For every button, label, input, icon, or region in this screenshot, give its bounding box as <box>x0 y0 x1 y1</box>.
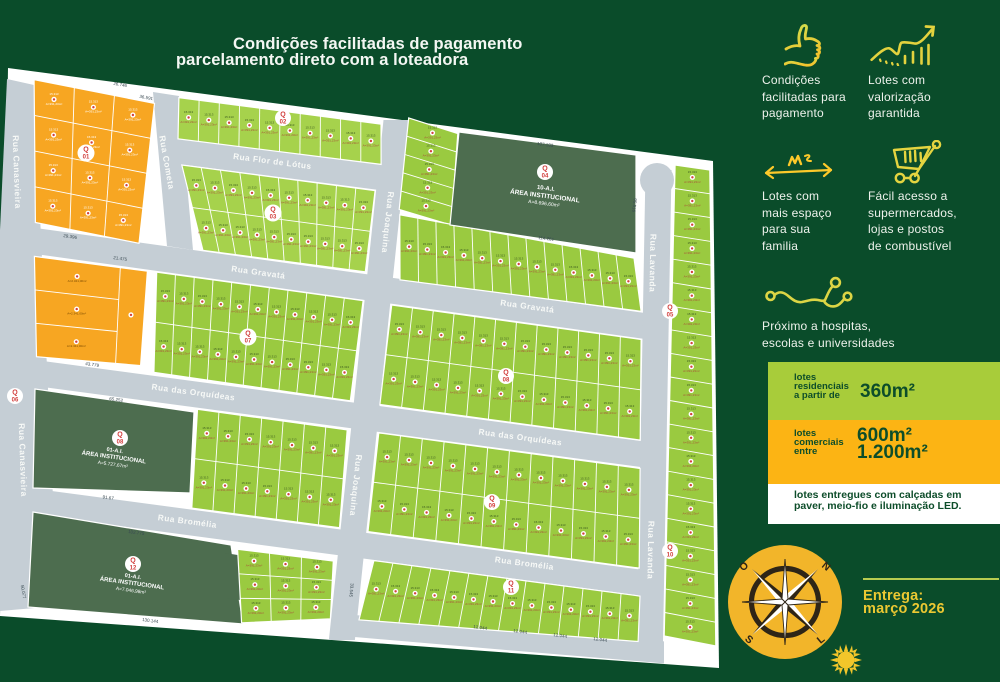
svg-text:15.313: 15.313 <box>161 289 171 293</box>
svg-text:A=391,23m²: A=391,23m² <box>259 494 275 498</box>
svg-text:A=391,23m²: A=391,23m² <box>155 349 171 353</box>
svg-text:A=391,23m²: A=391,23m² <box>401 463 417 467</box>
svg-text:A=391,23m²: A=391,23m² <box>268 315 284 319</box>
svg-text:A=391,23m²: A=391,23m² <box>475 343 491 347</box>
svg-text:A=391,23m²: A=391,23m² <box>683 464 699 468</box>
svg-text:15.313: 15.313 <box>263 484 273 488</box>
svg-text:15.313: 15.313 <box>285 190 295 194</box>
svg-text:15.313: 15.313 <box>586 604 596 608</box>
svg-text:15.313: 15.313 <box>518 389 528 393</box>
svg-text:A=391,23m²: A=391,23m² <box>301 500 317 504</box>
svg-text:15.313: 15.313 <box>202 426 212 430</box>
svg-text:A=391,23m²: A=391,23m² <box>118 188 134 192</box>
svg-text:A=391,23m²: A=391,23m² <box>621 492 637 496</box>
svg-text:15.313: 15.313 <box>272 305 282 309</box>
svg-text:A=391,23m²: A=391,23m² <box>599 489 615 493</box>
svg-text:15.313: 15.313 <box>428 125 438 129</box>
svg-text:15.313: 15.313 <box>422 505 432 509</box>
svg-text:A=391,23m²: A=391,23m² <box>621 414 637 418</box>
svg-text:15.313: 15.313 <box>311 600 321 604</box>
svg-text:A=391,23m²: A=391,23m² <box>300 370 316 374</box>
svg-text:Rua Lavanda: Rua Lavanda <box>647 234 658 293</box>
svg-text:A=391,23m²: A=391,23m² <box>441 518 457 522</box>
svg-text:15.313: 15.313 <box>686 549 696 553</box>
svg-text:A=391,23m²: A=391,23m² <box>620 542 636 546</box>
svg-text:A=391,23m²: A=391,23m² <box>418 209 434 213</box>
svg-text:A=391,23m²: A=391,23m² <box>213 307 229 311</box>
svg-text:A=391,23m²: A=391,23m² <box>318 372 334 376</box>
svg-text:Q: Q <box>667 305 673 312</box>
svg-text:A=391,23m²: A=391,23m² <box>580 358 596 362</box>
svg-text:A=391,23m²: A=391,23m² <box>180 120 196 124</box>
svg-text:A=391,23m²: A=391,23m² <box>465 602 481 606</box>
svg-text:A=391,23m²: A=391,23m² <box>220 439 236 443</box>
svg-text:15.313: 15.313 <box>582 398 592 402</box>
svg-text:15.313: 15.313 <box>159 339 169 343</box>
svg-text:A=391,23m²: A=391,23m² <box>173 352 189 356</box>
svg-text:A=391,23m²: A=391,23m² <box>622 364 638 368</box>
svg-text:15.313: 15.313 <box>220 478 230 482</box>
svg-text:15.313: 15.313 <box>426 456 436 460</box>
svg-text:15.313: 15.313 <box>556 523 566 527</box>
svg-text:15.313: 15.313 <box>688 241 698 245</box>
svg-text:15.313: 15.313 <box>475 383 485 387</box>
svg-text:A=391,23m²: A=391,23m² <box>305 320 321 324</box>
svg-text:15.313: 15.313 <box>444 508 454 512</box>
svg-text:15.313: 15.313 <box>489 514 499 518</box>
svg-text:A=391,23m²: A=391,23m² <box>456 258 472 262</box>
svg-text:A=391,23m²: A=391,23m² <box>368 592 384 596</box>
svg-text:15.313: 15.313 <box>687 336 697 340</box>
svg-text:15.313: 15.313 <box>542 342 552 346</box>
svg-text:A=2.341,00m²: A=2.341,00m² <box>67 344 86 348</box>
svg-text:A=391,23m²: A=391,23m² <box>485 604 501 608</box>
svg-text:A=391,23m²: A=391,23m² <box>249 237 265 241</box>
svg-text:A=391,23m²: A=391,23m² <box>600 411 616 415</box>
svg-text:15.313: 15.313 <box>284 487 294 491</box>
svg-text:15.313: 15.313 <box>265 120 275 124</box>
svg-text:15.313: 15.313 <box>605 351 615 355</box>
svg-text:15.313: 15.313 <box>426 144 436 148</box>
svg-text:15.313: 15.313 <box>309 310 319 314</box>
svg-text:15.313: 15.313 <box>604 401 614 405</box>
svg-text:15.313: 15.313 <box>534 520 544 524</box>
svg-text:A=391,23m²: A=391,23m² <box>282 367 298 371</box>
svg-text:A=391,23m²: A=391,23m² <box>324 322 340 326</box>
svg-text:15.313: 15.313 <box>569 265 579 269</box>
svg-text:15.313: 15.313 <box>458 331 468 335</box>
svg-text:A=391,23m²: A=391,23m² <box>281 200 297 204</box>
svg-text:A=391,23m²: A=391,23m² <box>602 616 618 620</box>
svg-text:Q: Q <box>12 390 18 397</box>
svg-text:15.313: 15.313 <box>425 162 435 166</box>
svg-text:A=391,23m²: A=391,23m² <box>423 154 439 158</box>
svg-text:A=391,23m²: A=391,23m² <box>529 269 545 273</box>
svg-text:15.313: 15.313 <box>448 459 458 463</box>
svg-text:15.313: 15.313 <box>688 170 698 174</box>
svg-text:Q: Q <box>542 166 548 173</box>
svg-text:A=391,23m²: A=391,23m² <box>80 216 96 220</box>
svg-text:15.313: 15.313 <box>305 490 315 494</box>
svg-text:15.313: 15.313 <box>496 254 506 258</box>
svg-text:15.313: 15.313 <box>270 230 280 234</box>
svg-text:15.313: 15.313 <box>469 592 479 596</box>
svg-text:15.313: 15.313 <box>250 577 260 581</box>
svg-text:A=391,23m²: A=391,23m² <box>601 361 617 365</box>
svg-text:15.313: 15.313 <box>281 579 291 583</box>
svg-text:A=391,23m²: A=391,23m² <box>412 335 428 339</box>
svg-text:A=391,23m²: A=391,23m² <box>683 488 699 492</box>
svg-text:A=391,23m²: A=391,23m² <box>682 582 698 586</box>
svg-text:15.313: 15.313 <box>411 375 421 379</box>
svg-text:15.313: 15.313 <box>558 473 568 477</box>
svg-text:15.313: 15.313 <box>87 135 97 139</box>
svg-text:15.313: 15.313 <box>625 404 635 408</box>
svg-text:A=391,23m²: A=391,23m² <box>188 188 204 192</box>
svg-text:15.313: 15.313 <box>242 481 252 485</box>
svg-text:A=391,23m²: A=391,23m² <box>278 610 294 614</box>
svg-text:15.313: 15.313 <box>500 336 510 340</box>
svg-text:A=391,23m²: A=391,23m² <box>547 272 563 276</box>
svg-text:07: 07 <box>245 339 252 345</box>
svg-text:A=391,23m²: A=391,23m² <box>426 598 442 602</box>
svg-text:A=391,23m²: A=391,23m² <box>334 249 350 253</box>
svg-text:A=391,23m²: A=391,23m² <box>543 610 559 614</box>
svg-text:A=391,23m²: A=391,23m² <box>682 559 698 563</box>
svg-text:15.313: 15.313 <box>290 307 300 311</box>
svg-text:A=391,23m²: A=391,23m² <box>225 193 241 197</box>
svg-text:A=391,23m²: A=391,23m² <box>262 198 278 202</box>
svg-text:A=391,23m²: A=391,23m² <box>530 530 546 534</box>
svg-text:15.313: 15.313 <box>125 143 135 147</box>
svg-text:A=391,23m²: A=391,23m² <box>121 153 137 157</box>
svg-text:Q: Q <box>270 207 276 214</box>
svg-text:A=391,23m²: A=391,23m² <box>82 180 98 184</box>
svg-text:A=391,23m²: A=391,23m² <box>85 110 101 114</box>
svg-text:15.313: 15.313 <box>561 395 571 399</box>
svg-text:15.313: 15.313 <box>340 365 350 369</box>
svg-text:A=391,23m²: A=391,23m² <box>228 359 244 363</box>
svg-text:09: 09 <box>489 504 496 510</box>
svg-text:15.313: 15.313 <box>416 325 426 329</box>
svg-text:15.313: 15.313 <box>231 349 241 353</box>
svg-text:15.313: 15.313 <box>532 259 542 263</box>
svg-text:15.313: 15.313 <box>119 213 129 217</box>
svg-text:15.313: 15.313 <box>359 200 369 204</box>
svg-text:15.313: 15.313 <box>563 345 573 349</box>
svg-text:15.313: 15.313 <box>421 199 431 203</box>
svg-text:Q: Q <box>489 496 495 503</box>
svg-text:A=391,23m²: A=391,23m² <box>683 440 699 444</box>
svg-text:A=391,23m²: A=391,23m² <box>492 264 508 268</box>
svg-text:A=391,23m²: A=391,23m² <box>247 587 263 591</box>
svg-text:A=391,23m²: A=391,23m² <box>582 614 598 618</box>
svg-text:15.313: 15.313 <box>235 299 245 303</box>
svg-text:15.313: 15.313 <box>340 198 350 202</box>
svg-text:A=391,23m²: A=391,23m² <box>210 357 226 361</box>
svg-text:A=391,23m²: A=391,23m² <box>514 399 530 403</box>
svg-text:A=391,23m²: A=391,23m² <box>508 527 524 531</box>
svg-text:A=391,23m²: A=391,23m² <box>308 590 324 594</box>
svg-text:A=391,23m²: A=391,23m² <box>277 567 293 571</box>
svg-text:15.313: 15.313 <box>423 242 433 246</box>
svg-text:10: 10 <box>667 553 674 559</box>
svg-text:15.313: 15.313 <box>322 362 332 366</box>
svg-text:15.313: 15.313 <box>686 572 696 576</box>
svg-text:A=391,23m²: A=391,23m² <box>683 417 699 421</box>
svg-text:06: 06 <box>12 398 19 404</box>
svg-text:A=391,23m²: A=391,23m² <box>283 242 299 246</box>
svg-text:15.313: 15.313 <box>312 560 322 564</box>
svg-text:A=391,23m²: A=391,23m² <box>407 596 423 600</box>
svg-text:15.313: 15.313 <box>686 478 696 482</box>
svg-text:15.313: 15.313 <box>346 315 356 319</box>
svg-text:15.313: 15.313 <box>303 193 313 197</box>
svg-text:15.313: 15.313 <box>49 163 59 167</box>
svg-text:Q: Q <box>280 112 286 119</box>
svg-text:15.313: 15.313 <box>527 598 537 602</box>
svg-text:A=391,23m²: A=391,23m² <box>437 255 453 259</box>
svg-text:A=391,23m²: A=391,23m² <box>684 180 700 184</box>
svg-text:A=391,23m²: A=391,23m² <box>621 618 637 622</box>
svg-text:A=391,23m²: A=391,23m² <box>287 317 303 321</box>
svg-text:15.313: 15.313 <box>395 322 405 326</box>
svg-text:A=391,23m²: A=391,23m² <box>682 630 698 634</box>
svg-text:A=391,23m²: A=391,23m² <box>418 515 434 519</box>
svg-text:A=391,23m²: A=391,23m² <box>584 278 600 282</box>
svg-text:Q: Q <box>503 370 509 377</box>
svg-text:15.313: 15.313 <box>304 360 314 364</box>
svg-text:15.313: 15.313 <box>536 471 546 475</box>
svg-text:A=391,23m²: A=391,23m² <box>486 524 502 528</box>
svg-text:15.313: 15.313 <box>514 257 524 261</box>
svg-text:A=391,23m²: A=391,23m² <box>579 408 595 412</box>
svg-text:15.313: 15.313 <box>389 372 399 376</box>
svg-text:A=391,23m²: A=391,23m² <box>538 352 554 356</box>
svg-text:15.313: 15.313 <box>281 557 291 561</box>
svg-text:15.313: 15.313 <box>432 378 442 382</box>
svg-text:A=391,23m²: A=391,23m² <box>238 491 254 495</box>
svg-text:15.313: 15.313 <box>198 294 208 298</box>
svg-text:A=391,23m²: A=391,23m² <box>336 375 352 379</box>
svg-text:15.313: 15.313 <box>229 183 239 187</box>
svg-text:15.313: 15.313 <box>216 297 226 301</box>
svg-text:Rua Lavanda: Rua Lavanda <box>645 521 656 580</box>
svg-text:A=391,23m²: A=391,23m² <box>433 338 449 342</box>
svg-text:A=391,23m²: A=391,23m² <box>198 231 214 235</box>
svg-text:A=391,23m²: A=391,23m² <box>493 396 509 400</box>
svg-text:15.313: 15.313 <box>453 380 463 384</box>
svg-text:A=391,23m²: A=391,23m² <box>300 244 316 248</box>
svg-text:15.313: 15.313 <box>601 529 611 533</box>
svg-text:A=391,23m²: A=391,23m² <box>379 460 395 464</box>
svg-text:15.313: 15.313 <box>213 347 223 351</box>
svg-text:A=391,23m²: A=391,23m² <box>46 102 62 106</box>
svg-text:15.313: 15.313 <box>321 236 331 240</box>
svg-text:15.313: 15.313 <box>210 181 220 185</box>
svg-text:A=2.341,00m²: A=2.341,00m² <box>67 312 86 316</box>
svg-text:15.313: 15.313 <box>624 274 634 278</box>
svg-text:A=391,23m²: A=391,23m² <box>385 382 401 386</box>
svg-text:A=391,23m²: A=391,23m² <box>351 251 367 255</box>
svg-text:A=391,23m²: A=391,23m² <box>196 485 212 489</box>
svg-text:15.313: 15.313 <box>686 525 696 529</box>
svg-text:A=391,23m²: A=391,23m² <box>266 240 282 244</box>
svg-text:A=391,23m²: A=391,23m² <box>299 203 315 207</box>
svg-text:A=391,23m²: A=391,23m² <box>45 173 61 177</box>
svg-text:15.313: 15.313 <box>355 241 365 245</box>
svg-text:A=391,23m²: A=391,23m² <box>396 512 412 516</box>
svg-text:15.313: 15.313 <box>688 217 698 221</box>
svg-text:15.313: 15.313 <box>441 245 451 249</box>
svg-text:15.313: 15.313 <box>687 312 697 316</box>
svg-text:A=391,23m²: A=391,23m² <box>421 172 437 176</box>
svg-text:A=391,23m²: A=391,23m² <box>280 497 296 501</box>
svg-text:A=391,23m²: A=391,23m² <box>428 388 444 392</box>
svg-text:A=391,23m²: A=391,23m² <box>176 302 192 306</box>
svg-text:A=391,23m²: A=391,23m² <box>553 533 569 537</box>
svg-text:A=391,23m²: A=391,23m² <box>192 354 208 358</box>
svg-text:A=391,23m²: A=391,23m² <box>684 275 700 279</box>
svg-text:A=391,23m²: A=391,23m² <box>241 442 257 446</box>
svg-text:A=391,23m²: A=391,23m² <box>322 138 338 142</box>
svg-text:15.313: 15.313 <box>287 232 297 236</box>
svg-text:15.313: 15.313 <box>687 430 697 434</box>
svg-text:15.313: 15.313 <box>195 344 205 348</box>
svg-text:15.313: 15.313 <box>204 113 214 117</box>
svg-text:15.313: 15.313 <box>84 206 94 210</box>
svg-text:15.313: 15.313 <box>253 302 263 306</box>
svg-text:15.313: 15.313 <box>450 590 460 594</box>
svg-text:A=391,23m²: A=391,23m² <box>419 252 435 256</box>
svg-text:A=391,23m²: A=391,23m² <box>261 130 277 134</box>
svg-text:A=391,23m²: A=391,23m² <box>250 312 266 316</box>
svg-text:08: 08 <box>503 378 510 384</box>
svg-text:15.313: 15.313 <box>338 239 348 243</box>
svg-text:A=391,23m²: A=391,23m² <box>524 608 540 612</box>
svg-text:A=391,23m²: A=391,23m² <box>559 355 575 359</box>
svg-text:15.313: 15.313 <box>521 339 531 343</box>
svg-text:A=391,23m²: A=391,23m² <box>407 385 423 389</box>
svg-text:15.313: 15.313 <box>383 450 393 454</box>
svg-text:A=391,23m²: A=391,23m² <box>374 509 390 513</box>
svg-text:A=391,23m²: A=391,23m² <box>575 536 591 540</box>
svg-text:A=391,23m²: A=391,23m² <box>241 128 257 132</box>
svg-text:A=391,23m²: A=391,23m² <box>342 325 358 329</box>
svg-text:15.313: 15.313 <box>266 435 276 439</box>
svg-text:15.313: 15.313 <box>247 185 257 189</box>
svg-text:A=391,23m²: A=391,23m² <box>157 299 173 303</box>
svg-text:15.313: 15.313 <box>488 594 498 598</box>
svg-text:A=391,23m²: A=391,23m² <box>309 570 325 574</box>
svg-text:15.313: 15.313 <box>328 312 338 316</box>
svg-text:A=391,23m²: A=391,23m² <box>284 448 300 452</box>
svg-text:A=391,23m²: A=391,23m² <box>318 205 334 209</box>
svg-text:A=391,23m²: A=391,23m² <box>533 481 549 485</box>
svg-text:15.313: 15.313 <box>236 225 246 229</box>
svg-text:15.313: 15.313 <box>85 170 95 174</box>
svg-text:15.313: 15.313 <box>400 502 410 506</box>
svg-text:15.313: 15.313 <box>199 475 209 479</box>
svg-text:15.313: 15.313 <box>587 268 597 272</box>
svg-text:A=391,23m²: A=391,23m² <box>682 535 698 539</box>
svg-text:A=391,23m²: A=391,23m² <box>684 227 700 231</box>
svg-text:15.313: 15.313 <box>309 441 319 445</box>
svg-text:A=391,23m²: A=391,23m² <box>323 502 339 506</box>
svg-text:15.313: 15.313 <box>605 606 615 610</box>
svg-text:A=391,23m²: A=391,23m² <box>355 210 371 214</box>
svg-text:15.313: 15.313 <box>89 100 99 104</box>
svg-text:A=391,23m²: A=391,23m² <box>684 298 700 302</box>
svg-text:A=391,23m²: A=391,23m² <box>496 346 512 350</box>
svg-text:15.313: 15.313 <box>512 517 522 521</box>
svg-text:15.313: 15.313 <box>496 386 506 390</box>
svg-text:15.313: 15.313 <box>492 465 502 469</box>
svg-text:15.313: 15.313 <box>48 199 58 203</box>
svg-text:15.313: 15.313 <box>470 462 480 466</box>
svg-text:A=391,23m²: A=391,23m² <box>115 223 131 227</box>
svg-text:A=2.341,00m²: A=2.341,00m² <box>68 279 87 283</box>
svg-text:A=391,23m²: A=391,23m² <box>45 138 61 142</box>
svg-text:A=391,23m²: A=391,23m² <box>308 610 324 614</box>
svg-text:A=391,23m²: A=391,23m² <box>683 346 699 350</box>
svg-text:15.313: 15.313 <box>286 357 296 361</box>
svg-text:A=391,23m²: A=391,23m² <box>244 195 260 199</box>
svg-text:15.313: 15.313 <box>312 580 322 584</box>
svg-text:15.313: 15.313 <box>377 499 387 503</box>
svg-text:A=391,23m²: A=391,23m² <box>424 135 440 139</box>
svg-text:A=391,23m²: A=391,23m² <box>517 349 533 353</box>
svg-text:15.313: 15.313 <box>566 602 576 606</box>
svg-text:15.313: 15.313 <box>391 584 401 588</box>
svg-text:15.313: 15.313 <box>250 352 260 356</box>
svg-text:A=391,23m²: A=391,23m² <box>217 488 233 492</box>
svg-text:A=391,23m²: A=391,23m² <box>467 472 483 476</box>
svg-text:A=391,23m²: A=391,23m² <box>317 246 333 250</box>
svg-text:15.313: 15.313 <box>304 234 314 238</box>
svg-text:15.313: 15.313 <box>177 342 187 346</box>
svg-text:15.313: 15.313 <box>580 476 590 480</box>
svg-text:A=391,23m²: A=391,23m² <box>536 402 552 406</box>
svg-text:15.313: 15.313 <box>686 620 696 624</box>
svg-text:Q: Q <box>667 545 673 552</box>
svg-text:15.313: 15.313 <box>478 251 488 255</box>
svg-text:15.313: 15.313 <box>249 554 259 558</box>
svg-text:A=391,23m²: A=391,23m² <box>620 284 636 288</box>
svg-text:A=391,23m²: A=391,23m² <box>511 478 527 482</box>
svg-text:15.313: 15.313 <box>287 438 297 442</box>
svg-text:15.313: 15.313 <box>322 195 332 199</box>
svg-text:15.313: 15.313 <box>372 582 382 586</box>
svg-text:A=391,23m²: A=391,23m² <box>326 453 342 457</box>
svg-text:Q: Q <box>130 558 136 565</box>
svg-text:A=391,23m²: A=391,23m² <box>683 322 699 326</box>
svg-text:15.313: 15.313 <box>405 239 415 243</box>
svg-text:A=391,23m²: A=391,23m² <box>387 594 403 598</box>
svg-text:15.313: 15.313 <box>423 180 433 184</box>
svg-text:A=391,23m²: A=391,23m² <box>504 606 520 610</box>
svg-text:12: 12 <box>130 566 137 572</box>
svg-text:15.313: 15.313 <box>404 453 414 457</box>
svg-text:A=391,23m²: A=391,23m² <box>45 209 61 213</box>
svg-text:02: 02 <box>280 120 287 126</box>
svg-text:03: 03 <box>270 215 277 221</box>
svg-text:A=391,23m²: A=391,23m² <box>215 233 231 237</box>
svg-text:A=391,23m²: A=391,23m² <box>305 451 321 455</box>
svg-text:A=391,23m²: A=391,23m² <box>563 612 579 616</box>
svg-text:15.313: 15.313 <box>202 221 212 225</box>
svg-text:A=391,23m²: A=391,23m² <box>450 390 466 394</box>
